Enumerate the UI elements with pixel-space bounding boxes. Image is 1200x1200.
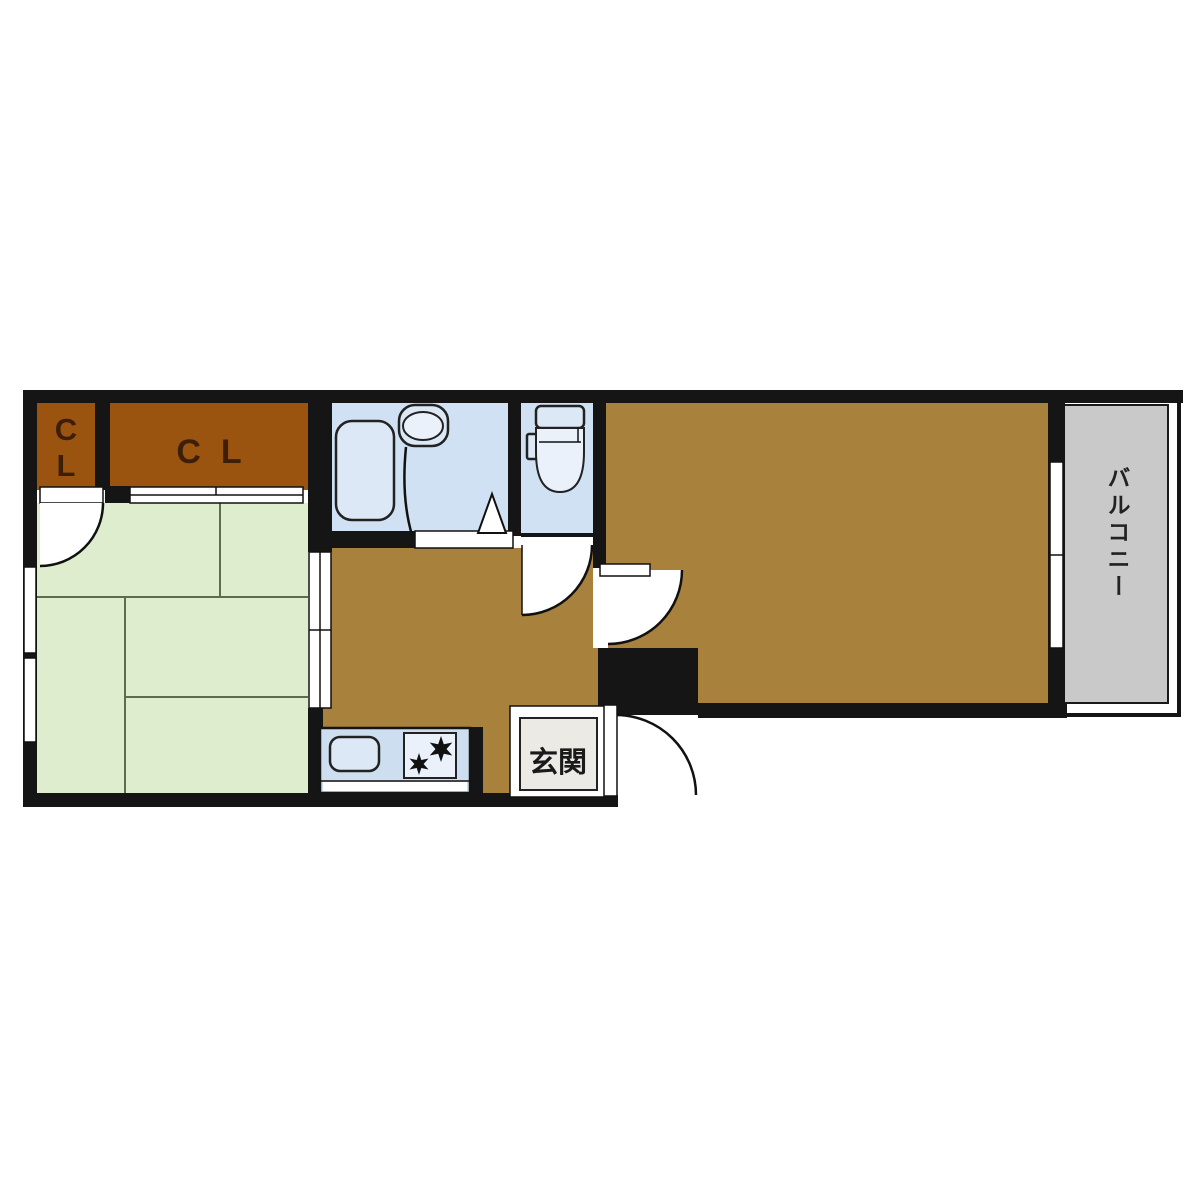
kitchen-sink-icon (330, 737, 379, 771)
closet-1-door-opening (40, 487, 103, 503)
closet-2-label: CL (110, 433, 308, 472)
wall-closet-divider (95, 390, 110, 490)
closet-2-sliding-door (130, 487, 303, 503)
entrance-door-leaf (604, 705, 617, 796)
wall-bath-toilet (508, 403, 521, 536)
main-room-door-leaf (600, 564, 650, 576)
stove-icon (404, 733, 456, 778)
bathtub-icon (336, 421, 394, 520)
closet-1-label: CL (46, 412, 86, 484)
washbasin-icon (399, 405, 448, 446)
wall-bathroom-bottom (332, 531, 415, 548)
floor-plan: CL CL 玄関 バルコニー (0, 0, 1200, 1200)
entrance-label: 玄関 (518, 739, 598, 781)
balcony-rail-bottom (1064, 713, 1181, 717)
balcony-label: バルコニー (1102, 466, 1134, 646)
wall-tatami-kitchen-upper (308, 390, 332, 552)
window-left-upper (24, 567, 36, 653)
wall-closet-stub (105, 486, 130, 503)
balcony-sliding-door (1050, 462, 1063, 648)
wall-toilet-sill (521, 533, 593, 537)
floor-plan-drawing (0, 0, 1200, 1200)
wall-main-room-bottom (698, 703, 1067, 718)
wall-toilet-room (593, 390, 606, 568)
entrance-door-swing (604, 705, 696, 796)
window-left-lower (24, 658, 36, 742)
tatami-kitchen-sliding-door (309, 552, 331, 708)
balcony-rail-right (1177, 393, 1181, 717)
kitchen-counter (320, 728, 470, 793)
main-room-door-opening (593, 568, 608, 648)
